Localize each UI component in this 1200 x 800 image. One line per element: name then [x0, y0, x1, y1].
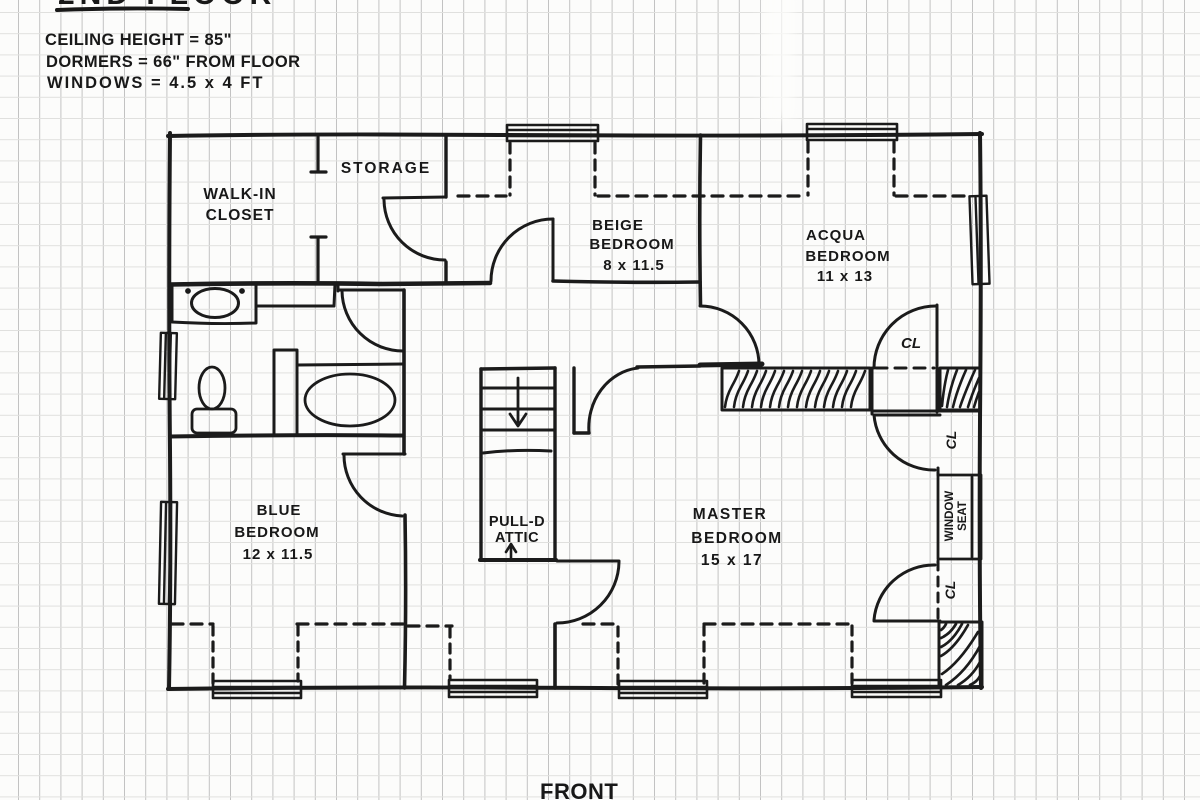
svg-text:WINDOW: WINDOW [944, 491, 956, 542]
svg-text:CEILING HEIGHT = 85": CEILING HEIGHT = 85" [45, 31, 232, 49]
svg-text:CLOSET: CLOSET [206, 207, 275, 224]
svg-text:CL: CL [943, 431, 959, 450]
svg-text:DORMERS = 66" FROM FLOOR: DORMERS = 66" FROM FLOOR [46, 53, 300, 71]
svg-text:WALK-IN: WALK-IN [203, 186, 276, 203]
svg-text:BLUE: BLUE [257, 502, 302, 519]
svg-text:11 x 13: 11 x 13 [817, 268, 873, 285]
svg-text:PULL-D: PULL-D [489, 514, 545, 530]
svg-text:12 x 11.5: 12 x 11.5 [243, 546, 314, 563]
svg-text:ACQUA: ACQUA [806, 227, 866, 244]
svg-text:15 x 17: 15 x 17 [701, 552, 763, 569]
svg-text:BEIGE: BEIGE [592, 217, 644, 234]
svg-text:STORAGE: STORAGE [341, 160, 431, 177]
svg-text:8 x 11.5: 8 x 11.5 [603, 257, 664, 274]
svg-text:FRONT: FRONT [540, 779, 618, 800]
svg-text:BEDROOM: BEDROOM [691, 530, 782, 547]
svg-text:SEAT: SEAT [957, 501, 969, 531]
svg-text:ATTIC: ATTIC [495, 530, 539, 546]
svg-text:CL: CL [901, 335, 921, 352]
svg-text:BEDROOM: BEDROOM [234, 524, 319, 541]
svg-text:WINDOWS = 4.5 x 4 FT: WINDOWS = 4.5 x 4 FT [47, 74, 264, 92]
svg-text:BEDROOM: BEDROOM [589, 236, 674, 253]
svg-text:MASTER: MASTER [693, 506, 767, 523]
svg-text:BEDROOM: BEDROOM [805, 248, 890, 265]
svg-text:CL: CL [942, 581, 958, 600]
